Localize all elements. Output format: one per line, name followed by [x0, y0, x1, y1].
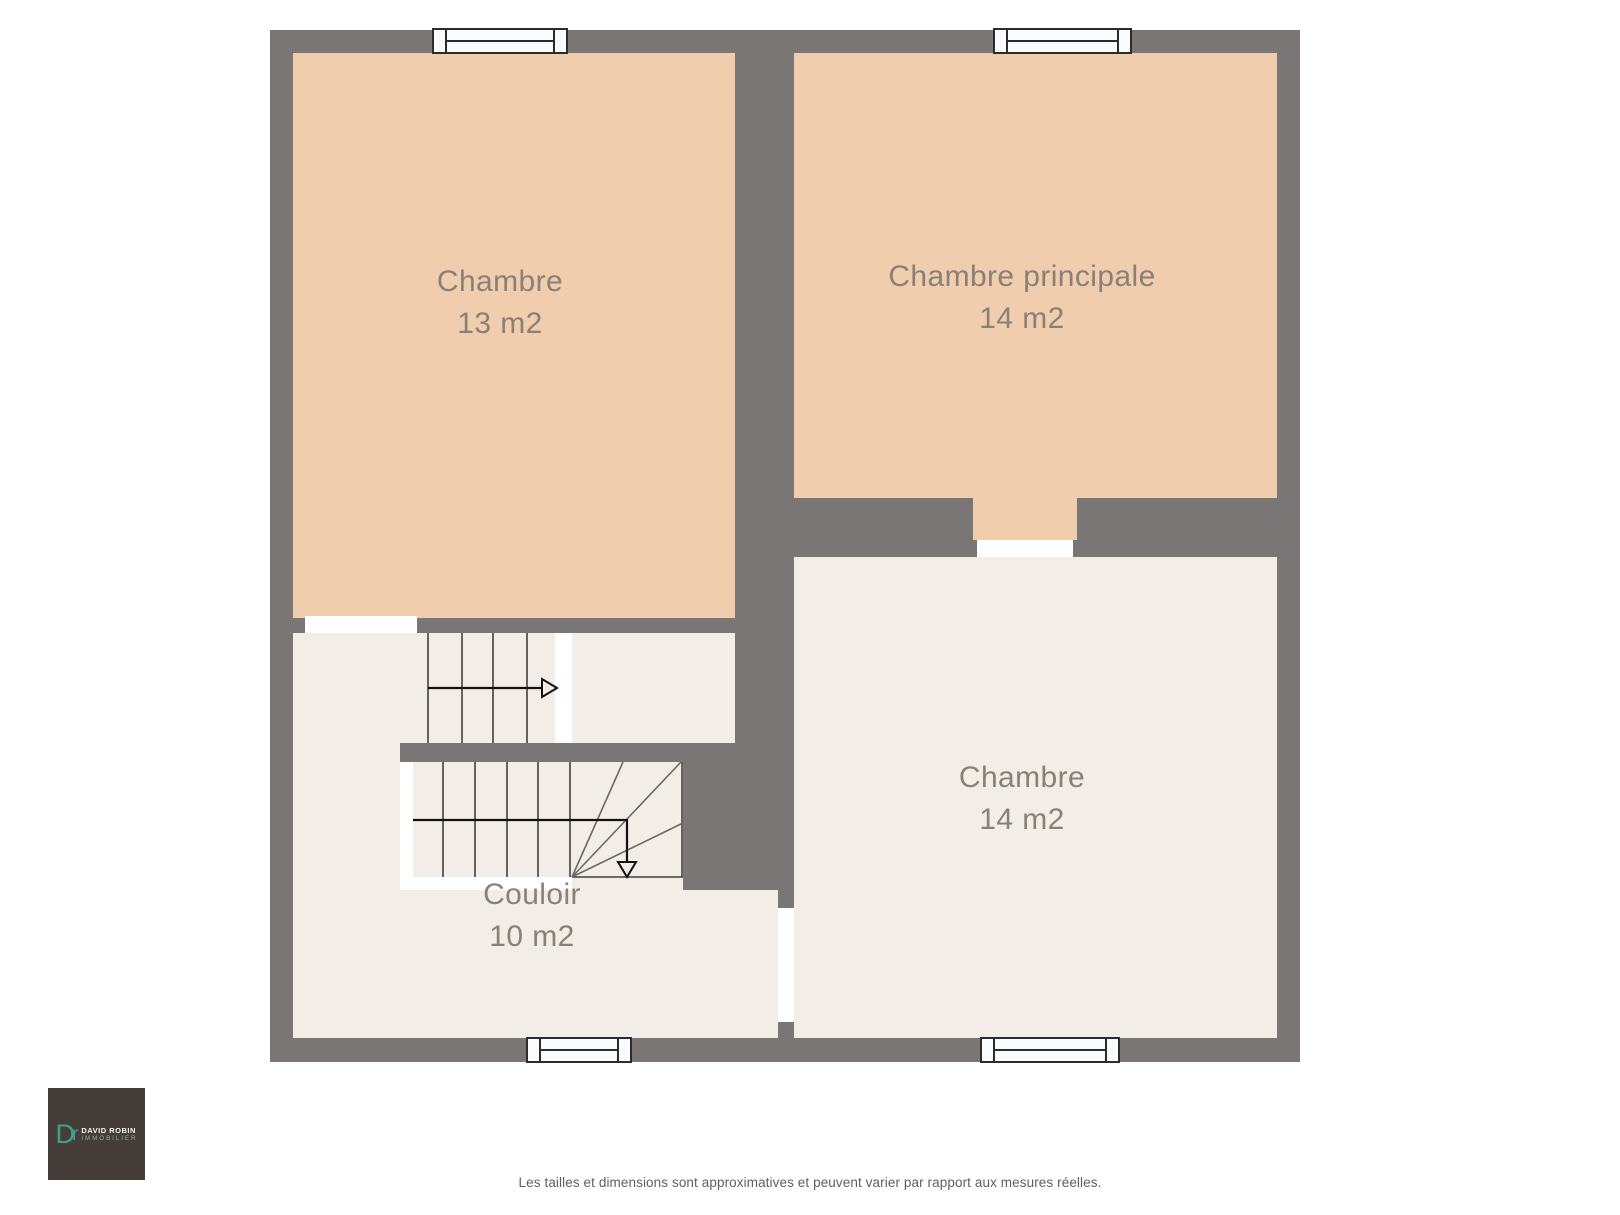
label-chambre-2: Chambre 14 m2: [959, 757, 1085, 841]
room-name: Couloir: [483, 874, 581, 916]
window-glass-line: [995, 1049, 1105, 1051]
agency-logo: D r DAVID ROBIN IMMOBILIER: [48, 1088, 145, 1180]
window-cap-icon: [1117, 30, 1119, 52]
room-area: 14 m2: [888, 298, 1155, 340]
window-chambre-2: [980, 1037, 1120, 1063]
logo-agency-name: DAVID ROBIN: [81, 1126, 137, 1135]
stair-lower-fill: [413, 762, 683, 877]
logo-monogram-r-icon: r: [72, 1125, 78, 1144]
window-chambre-principale: [993, 28, 1132, 54]
label-chambre-1: Chambre 13 m2: [437, 261, 563, 345]
window-chambre-1: [432, 28, 568, 54]
window-cap-icon: [617, 1039, 619, 1061]
room-name: Chambre: [959, 757, 1085, 799]
window-cap-icon: [1105, 1039, 1107, 1061]
window-cap-icon: [553, 30, 555, 52]
agency-logo-row: D r DAVID ROBIN IMMOBILIER: [56, 1121, 138, 1148]
door-passage-chambre-principale: [973, 498, 1077, 540]
disclaimer-text: Les tailles et dimensions sont approxima…: [0, 1175, 1620, 1190]
room-area: 13 m2: [437, 303, 563, 345]
window-glass-line: [1008, 40, 1117, 42]
door-gap-chambre-1: [305, 616, 417, 633]
stair-lower-winder-fill: [572, 877, 683, 890]
stair-upper-right-gap: [555, 633, 572, 743]
room-area: 10 m2: [483, 916, 581, 958]
door-gap-chambre-principale: [977, 540, 1073, 557]
label-couloir: Couloir 10 m2: [483, 874, 581, 958]
window-couloir: [526, 1037, 632, 1063]
door-gap-chambre-2: [778, 908, 794, 1022]
room-name: Chambre principale: [888, 256, 1155, 298]
logo-text-column: DAVID ROBIN IMMOBILIER: [81, 1126, 137, 1143]
room-area: 14 m2: [959, 799, 1085, 841]
window-glass-line: [447, 40, 553, 42]
logo-agency-subtitle: IMMOBILIER: [81, 1135, 137, 1143]
room-name: Chambre: [437, 261, 563, 303]
couloir-upper-band-fill: [293, 633, 735, 743]
floor-plan-page: Chambre 13 m2 Chambre principale 14 m2 C…: [0, 0, 1620, 1215]
window-glass-line: [541, 1049, 617, 1051]
label-chambre-principale: Chambre principale 14 m2: [888, 256, 1155, 340]
